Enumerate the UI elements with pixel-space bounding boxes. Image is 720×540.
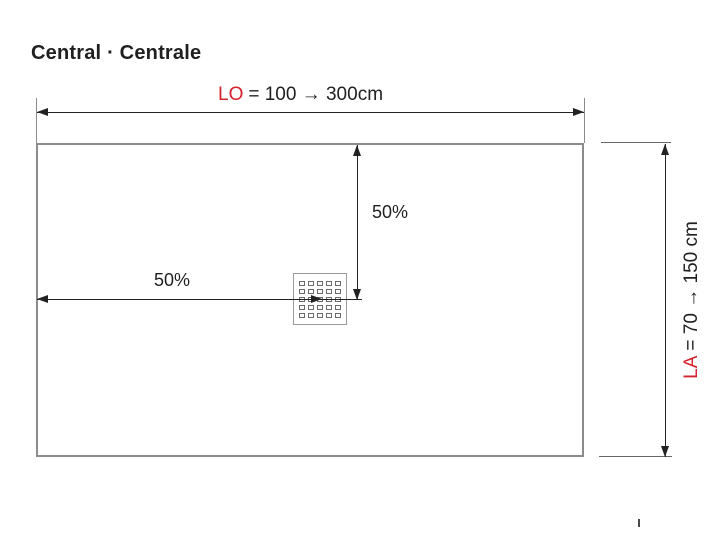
drain-hole — [326, 313, 332, 318]
drain-hole — [326, 281, 332, 286]
lo-witness-tick-left — [36, 98, 37, 143]
drain-hole — [299, 305, 305, 310]
vertical-offset-line — [357, 145, 358, 299]
lo-value: = 100 → 300cm — [248, 84, 383, 105]
horizontal-offset-arrow-left-icon — [37, 295, 48, 303]
drain-hole — [308, 305, 314, 310]
drain-hole — [335, 313, 341, 318]
drain-hole — [299, 313, 305, 318]
drain-hole — [335, 289, 341, 294]
drain-hole — [308, 313, 314, 318]
drain-hole — [317, 313, 323, 318]
lo-witness-tick-right — [584, 98, 585, 143]
drain-hole — [317, 289, 323, 294]
drain-hole — [299, 281, 305, 286]
drain-hole — [308, 281, 314, 286]
vertical-offset-arrow-up-icon — [353, 145, 361, 156]
drain-hole — [335, 281, 341, 286]
la-arrow-up-icon — [661, 144, 669, 155]
la-arrow-down-icon — [661, 446, 669, 457]
la-dimension-text: LA= 70 → 150 cm — [681, 200, 703, 400]
horizontal-offset-arrow-center-icon — [311, 295, 322, 303]
la-dimension-line — [665, 144, 666, 457]
drain-hole — [317, 281, 323, 286]
drain-hole — [326, 305, 332, 310]
drain-hole — [299, 289, 305, 294]
horizontal-offset-label: 50% — [154, 270, 190, 291]
lo-dimension-line — [37, 112, 584, 113]
lo-label: LO — [218, 84, 243, 105]
drain-hole — [308, 289, 314, 294]
diagram-canvas: Central · Centrale LO= 100 → 300cm 50% 5… — [0, 0, 720, 540]
drain-hole — [326, 289, 332, 294]
drain-hole — [317, 305, 323, 310]
vertical-offset-label: 50% — [372, 202, 408, 223]
la-witness-line-top — [601, 142, 671, 143]
diagram-title: Central · Centrale — [31, 42, 201, 65]
la-value: = 70 → 150 cm — [681, 221, 702, 350]
drain-hole — [335, 305, 341, 310]
lo-dimension-text: LO= 100 → 300cm — [218, 84, 383, 106]
small-tick-mark — [638, 519, 640, 527]
la-label: LA — [681, 356, 702, 379]
lo-arrow-left-icon — [37, 108, 48, 116]
lo-arrow-right-icon — [573, 108, 584, 116]
